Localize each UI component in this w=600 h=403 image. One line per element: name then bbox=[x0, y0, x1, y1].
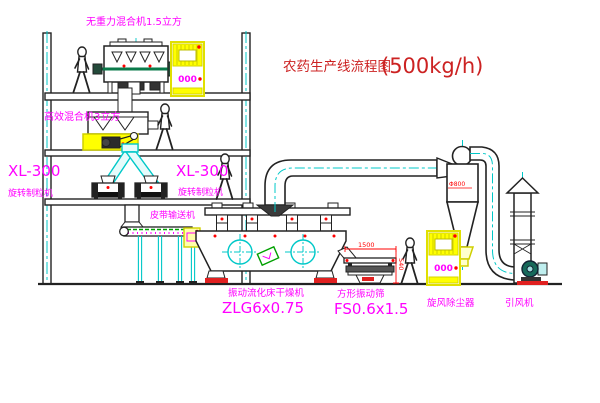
cyclone-vortex-finder bbox=[453, 147, 472, 166]
label-sieve-model: FS0.6x1.5 bbox=[334, 300, 408, 318]
label-mixer2: 高效混合机3立方 bbox=[44, 110, 120, 123]
dryer-foot-pad bbox=[205, 278, 228, 283]
control-cabinet-top: 000 bbox=[171, 42, 204, 96]
square-sieve bbox=[344, 258, 396, 283]
dryer-foot-pad bbox=[314, 278, 337, 283]
cabinet-display: 000 bbox=[178, 75, 197, 85]
conveyor-pulley bbox=[120, 227, 129, 236]
granulator-down-duct bbox=[121, 205, 143, 227]
label-cyclone: 旋风除尘器 bbox=[427, 297, 475, 309]
fan-motor bbox=[538, 263, 547, 275]
cad-flow-diagram: 000 bbox=[0, 0, 600, 403]
sieve-tray bbox=[344, 258, 396, 263]
diagram-svg: 000 bbox=[0, 0, 600, 403]
label-granulator-mid-model: XL-300 bbox=[176, 162, 228, 180]
indicator-dot bbox=[454, 266, 457, 269]
sieve-deck bbox=[346, 266, 394, 272]
granulator-right bbox=[135, 176, 167, 199]
fan-base-pad bbox=[517, 281, 548, 285]
label-fan: 引风机 bbox=[505, 297, 534, 309]
label-sieve-name: 方形振动筛 bbox=[337, 288, 385, 300]
label-dryer-model: ZLG6x0.75 bbox=[222, 299, 304, 317]
label-dryer-name: 振动流化床干燥机 bbox=[228, 287, 305, 299]
label-granulator-left-model: XL-300 bbox=[8, 162, 60, 180]
drawing-title: 农药生产线流程图 (500kg/h) bbox=[283, 54, 483, 78]
granulator-left bbox=[92, 176, 124, 199]
cyclone-diameter-note: Φ800 bbox=[449, 181, 465, 188]
label-granulator-left-name: 旋转制粒机 bbox=[8, 187, 53, 199]
roof-slab bbox=[45, 93, 250, 100]
title-text: 农药生产线流程图 bbox=[283, 59, 391, 75]
indicator-dot bbox=[197, 45, 200, 48]
dim-horizontal: 1500 bbox=[358, 241, 375, 249]
worker-figure-roof bbox=[74, 47, 90, 92]
spring-mounts bbox=[217, 215, 332, 231]
cabinet-display: 000 bbox=[434, 264, 453, 274]
mixer-feed-duct bbox=[118, 88, 132, 112]
dryer-foot bbox=[316, 271, 334, 278]
floor2-slab bbox=[45, 150, 250, 156]
indicator-dot bbox=[198, 77, 201, 80]
exhaust-duct bbox=[257, 158, 452, 216]
stack-rain-cap bbox=[507, 178, 538, 193]
label-top-mixer: 无重力混合机1.5立方 bbox=[86, 15, 182, 28]
control-cabinet-ground: 000 bbox=[427, 231, 460, 285]
label-belt-conveyor: 皮带输送机 bbox=[150, 209, 195, 221]
dryer-foot bbox=[207, 271, 225, 278]
worker-figure-floor2 bbox=[157, 104, 173, 149]
indicator-dot bbox=[453, 234, 456, 237]
dim-vertical: 540 bbox=[397, 258, 405, 270]
title-capacity: (500kg/h) bbox=[381, 54, 483, 78]
label-granulator-mid-name: 旋转制粒机 bbox=[178, 186, 223, 198]
